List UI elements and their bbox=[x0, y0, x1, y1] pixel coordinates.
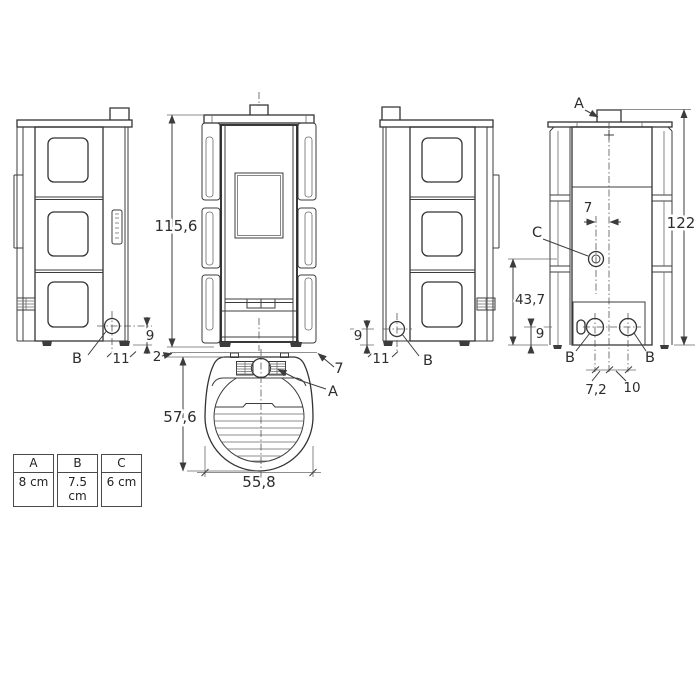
outlet-right-label: B bbox=[645, 350, 655, 366]
side-view-left-linework bbox=[14, 108, 132, 346]
legend-value-b: 7.5 cm bbox=[58, 473, 97, 506]
rating-plate bbox=[112, 210, 122, 244]
legend-column-a: A 8 cm bbox=[13, 454, 54, 507]
side-window-middle bbox=[422, 212, 462, 256]
front-view-linework bbox=[202, 92, 316, 351]
dim-outlet-right-offset: 10 bbox=[623, 380, 640, 396]
dim-outlet-offset: 11 bbox=[112, 351, 129, 367]
flue-label-a: A bbox=[328, 384, 338, 400]
side-window-middle bbox=[48, 212, 88, 256]
side-window-bottom bbox=[422, 282, 462, 327]
legend-column-c: C 6 cm bbox=[101, 454, 142, 507]
technical-drawing-page: B 11 9 bbox=[0, 0, 700, 680]
dim-socket-height: 43,7 bbox=[515, 292, 545, 308]
outlet-left-label: B bbox=[565, 350, 575, 366]
top-grille-right bbox=[269, 362, 286, 376]
socket-callout: C bbox=[532, 225, 604, 267]
top-view-inner-ring bbox=[214, 378, 304, 462]
dim-height-115-6: 115,6 bbox=[155, 217, 198, 235]
top-grille-left bbox=[237, 362, 254, 376]
side-view-right: B 11 9 bbox=[350, 107, 499, 369]
dim-flue-offset: 7 bbox=[334, 361, 343, 377]
flue-label-a: A bbox=[574, 96, 584, 112]
dimension-front-height: 115,6 bbox=[155, 115, 214, 347]
outlet-label-b: B bbox=[423, 353, 433, 369]
dim-rear-gap: 2 bbox=[153, 349, 162, 365]
technical-drawing: B 11 9 bbox=[0, 0, 700, 680]
dimensions-side-left: B 11 9 bbox=[72, 317, 154, 367]
dim-total-height: 122 bbox=[667, 214, 696, 232]
dim-outlet-height: 9 bbox=[146, 328, 155, 344]
dim-outlet-height: 9 bbox=[354, 328, 363, 344]
side-view-right-linework bbox=[380, 107, 499, 346]
door-glass bbox=[235, 173, 283, 238]
legend-value-c: 6 cm bbox=[102, 473, 141, 492]
dim-width: 55,8 bbox=[242, 473, 275, 491]
top-grate-lines bbox=[214, 404, 304, 462]
legend-header-a: A bbox=[14, 455, 53, 473]
side-window-bottom bbox=[48, 282, 88, 327]
legend-column-b: B 7.5 cm bbox=[57, 454, 98, 507]
dim-offset-7: 7 bbox=[584, 200, 593, 216]
rear-view-linework bbox=[548, 110, 672, 372]
side-window-top bbox=[422, 138, 462, 182]
dim-outlet-left-offset: 7,2 bbox=[585, 382, 606, 398]
rear-view: A 7 C 43,7 9 B bbox=[508, 96, 695, 398]
legend-value-a: 8 cm bbox=[14, 473, 53, 492]
legend-header-c: C bbox=[102, 455, 141, 473]
dim-depth: 57,6 bbox=[163, 408, 196, 426]
front-view: 115,6 bbox=[155, 92, 316, 351]
top-view: 57,6 55,8 2 7 A bbox=[153, 349, 344, 491]
socket-label-c: C bbox=[532, 225, 542, 241]
flue-callout: A bbox=[574, 96, 598, 117]
dim-outlet-height: 9 bbox=[536, 326, 545, 342]
dim-outlet-offset: 11 bbox=[372, 351, 389, 367]
legend-table: A 8 cm B 7.5 cm C 6 cm bbox=[13, 454, 142, 507]
center-offset-dim: 7 bbox=[584, 200, 621, 294]
legend-header-b: B bbox=[58, 455, 97, 473]
outlet-label-b: B bbox=[72, 351, 82, 367]
side-view-left: B 11 9 bbox=[14, 108, 154, 367]
side-window-top bbox=[48, 138, 88, 182]
